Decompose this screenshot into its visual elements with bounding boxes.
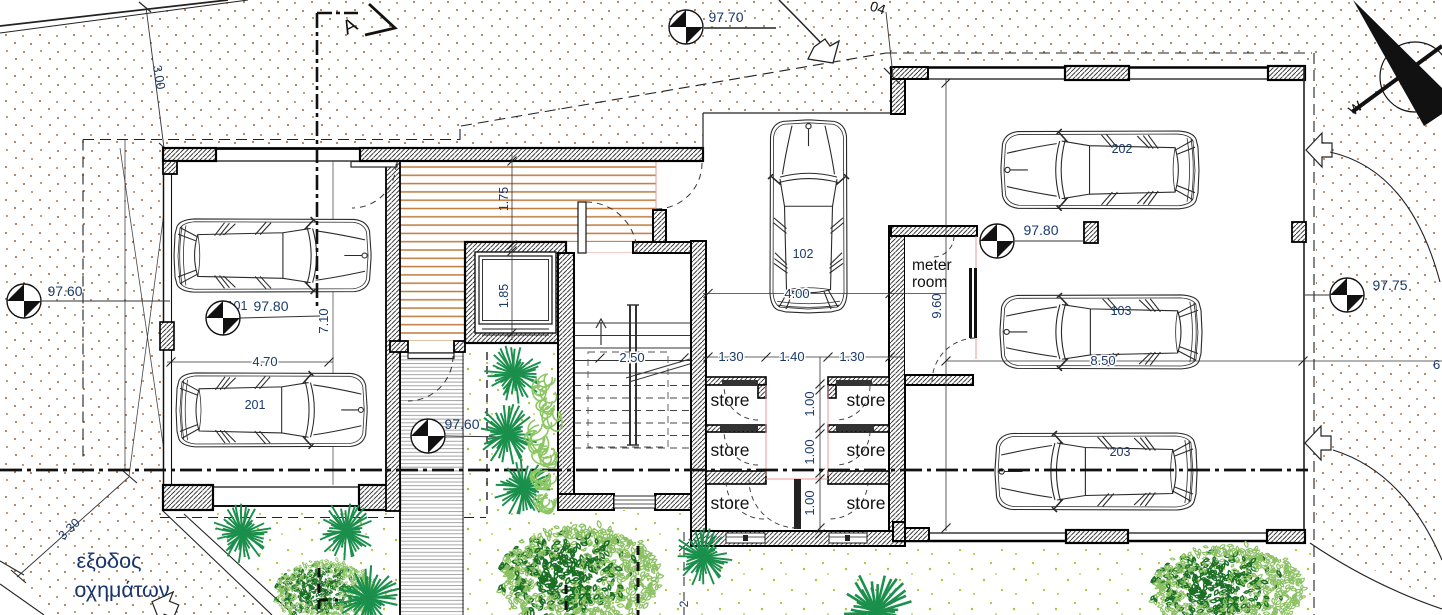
svg-text:store: store (711, 440, 750, 460)
svg-text:εξοδος: εξοδος (77, 549, 142, 573)
svg-text:201: 201 (245, 398, 266, 412)
svg-text:203: 203 (1110, 445, 1131, 459)
svg-text:1.00: 1.00 (802, 439, 817, 464)
svg-text:store: store (847, 440, 886, 460)
svg-text:1.75: 1.75 (497, 187, 511, 211)
svg-text:1.40: 1.40 (779, 349, 804, 364)
svg-text:7.10: 7.10 (316, 308, 331, 333)
svg-text:store: store (711, 390, 750, 410)
svg-text:4.00: 4.00 (784, 286, 809, 301)
svg-text:97.60: 97.60 (47, 283, 82, 299)
svg-text:9.60: 9.60 (929, 293, 944, 318)
svg-text:1.00: 1.00 (802, 490, 817, 515)
svg-text:97.75: 97.75 (1372, 277, 1407, 293)
svg-text:97.60: 97.60 (444, 416, 479, 432)
svg-text:103: 103 (1111, 304, 1132, 318)
svg-text:1.30: 1.30 (839, 349, 864, 364)
svg-text:1.85: 1.85 (497, 284, 511, 308)
svg-text:1.30: 1.30 (718, 349, 743, 364)
svg-text:97.70: 97.70 (708, 9, 743, 25)
svg-text:102: 102 (793, 247, 814, 261)
svg-text:οχημάτων: οχημάτων (74, 578, 169, 602)
svg-text:2: 2 (677, 600, 691, 607)
svg-text:6: 6 (1433, 357, 1440, 372)
svg-text:4.70: 4.70 (252, 354, 277, 369)
svg-text:2.50: 2.50 (619, 350, 644, 365)
svg-text:97.80: 97.80 (1023, 222, 1058, 238)
svg-text:97.80: 97.80 (253, 298, 288, 314)
svg-text:store: store (847, 390, 886, 410)
svg-text:8.50: 8.50 (1090, 353, 1115, 368)
svg-text:store: store (847, 493, 886, 513)
svg-text:store: store (711, 493, 750, 513)
svg-text:1.00: 1.00 (802, 391, 817, 416)
svg-text:202: 202 (1112, 142, 1133, 156)
svg-text:room: room (912, 274, 947, 291)
